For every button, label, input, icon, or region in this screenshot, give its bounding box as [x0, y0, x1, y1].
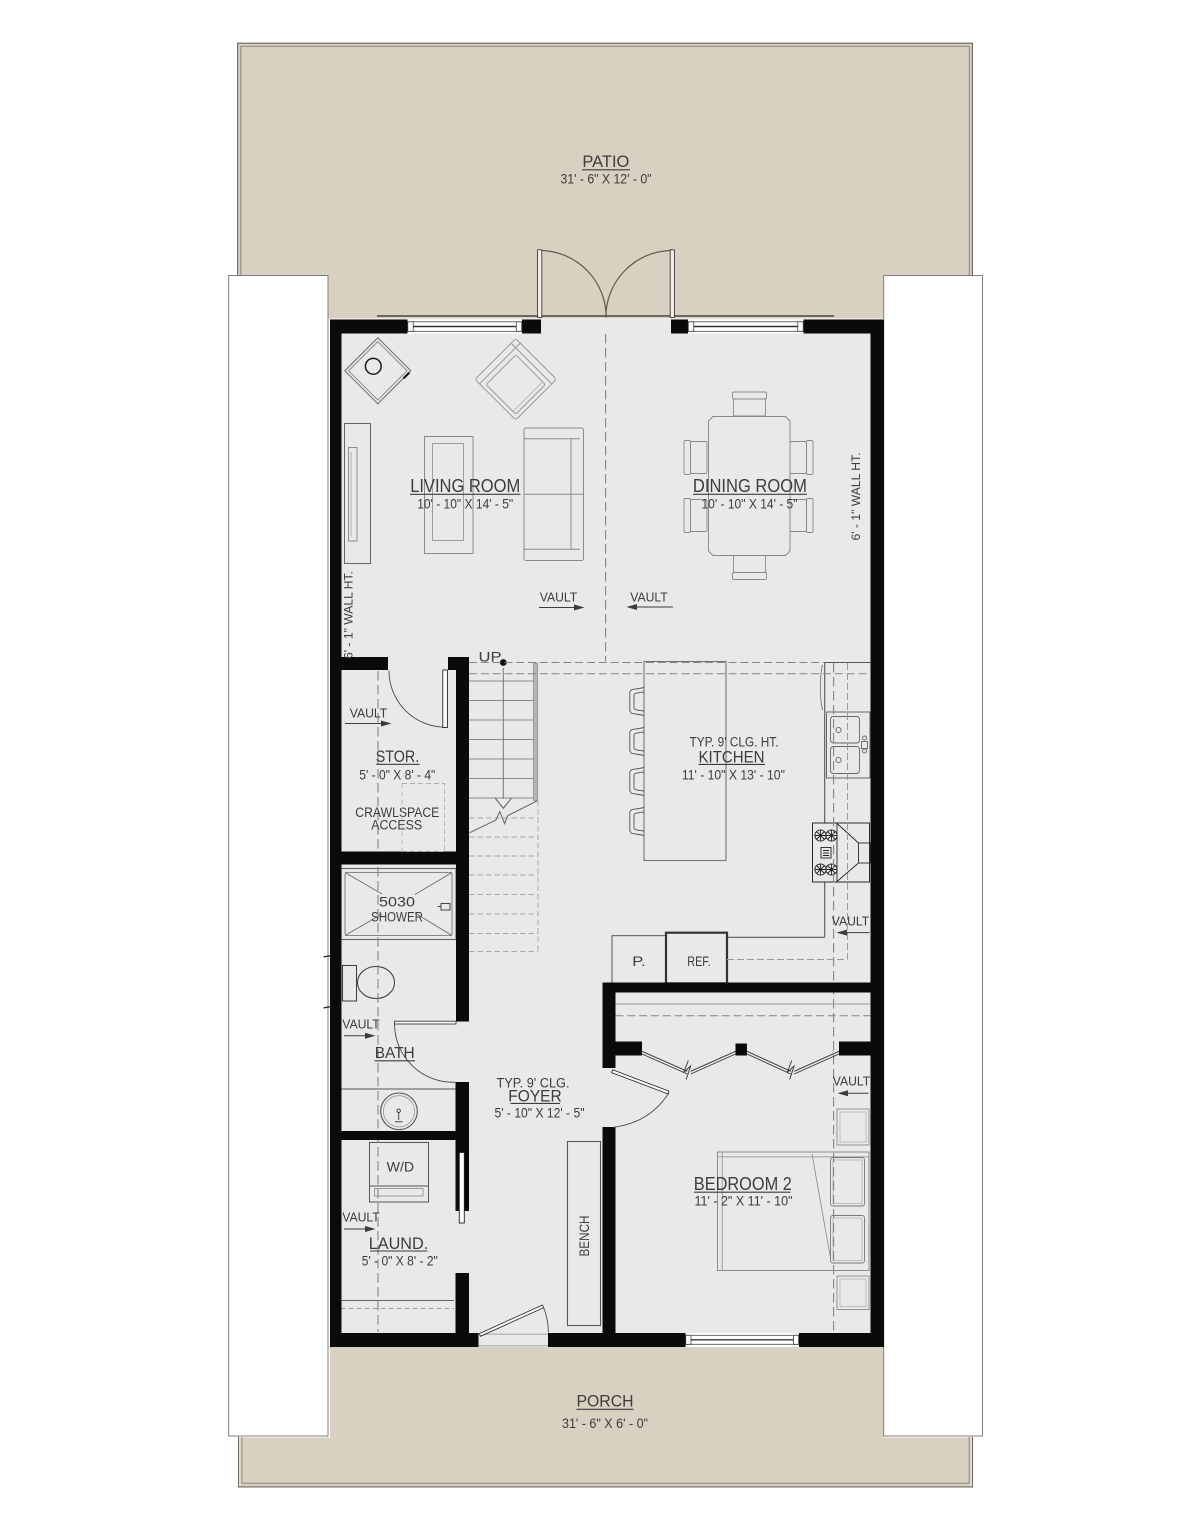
svg-text:11' - 2" X 11' - 10": 11' - 2" X 11' - 10": [695, 1194, 793, 1209]
svg-text:REF.: REF.: [687, 953, 711, 969]
svg-text:ACCESS: ACCESS: [371, 818, 422, 833]
svg-text:UP: UP: [479, 650, 502, 665]
svg-text:VAULT: VAULT: [350, 707, 388, 721]
svg-text:VAULT: VAULT: [342, 1211, 380, 1225]
svg-text:5' - 10" X 12' - 5": 5' - 10" X 12' - 5": [495, 1106, 585, 1121]
svg-text:BENCH: BENCH: [577, 1216, 592, 1257]
svg-text:DINING ROOM: DINING ROOM: [693, 476, 807, 496]
svg-text:BATH: BATH: [375, 1045, 415, 1062]
svg-text:W/D: W/D: [387, 1159, 415, 1175]
svg-text:SHOWER: SHOWER: [371, 910, 423, 925]
svg-text:10' - 10" X 14' - 5": 10' - 10" X 14' - 5": [417, 497, 513, 512]
svg-text:FOYER: FOYER: [508, 1087, 562, 1106]
svg-text:5030: 5030: [379, 895, 415, 910]
svg-text:6' - 1" WALL HT.: 6' - 1" WALL HT.: [344, 571, 356, 659]
svg-text:11' - 10" X 13' - 10": 11' - 10" X 13' - 10": [682, 768, 785, 783]
svg-text:31' - 6" X 6' - 0": 31' - 6" X 6' - 0": [562, 1416, 648, 1431]
svg-text:5' - 0" X 8' - 2": 5' - 0" X 8' - 2": [362, 1254, 438, 1269]
svg-text:VAULT: VAULT: [630, 591, 668, 605]
svg-text:STOR.: STOR.: [376, 747, 420, 766]
svg-text:VAULT: VAULT: [342, 1018, 380, 1032]
svg-text:PATIO: PATIO: [582, 152, 629, 171]
svg-text:KITCHEN: KITCHEN: [699, 748, 765, 767]
svg-text:VAULT: VAULT: [833, 1075, 871, 1089]
svg-text:BEDROOM 2: BEDROOM 2: [694, 1174, 792, 1194]
svg-text:VAULT: VAULT: [540, 591, 578, 605]
svg-text:LIVING ROOM: LIVING ROOM: [410, 476, 520, 496]
svg-text:VAULT: VAULT: [832, 915, 870, 929]
svg-text:31' - 6" X 12' - 0": 31' - 6" X 12' - 0": [561, 172, 652, 187]
svg-text:5' - 0" X 8' - 4": 5' - 0" X 8' - 4": [359, 768, 435, 783]
svg-text:LAUND.: LAUND.: [369, 1234, 429, 1253]
svg-text:6' - 1" WALL HT.: 6' - 1" WALL HT.: [851, 453, 863, 541]
svg-text:PORCH: PORCH: [577, 1392, 634, 1411]
svg-text:10' - 10" X 14' - 5": 10' - 10" X 14' - 5": [702, 497, 798, 512]
svg-text:P.: P.: [632, 953, 646, 969]
